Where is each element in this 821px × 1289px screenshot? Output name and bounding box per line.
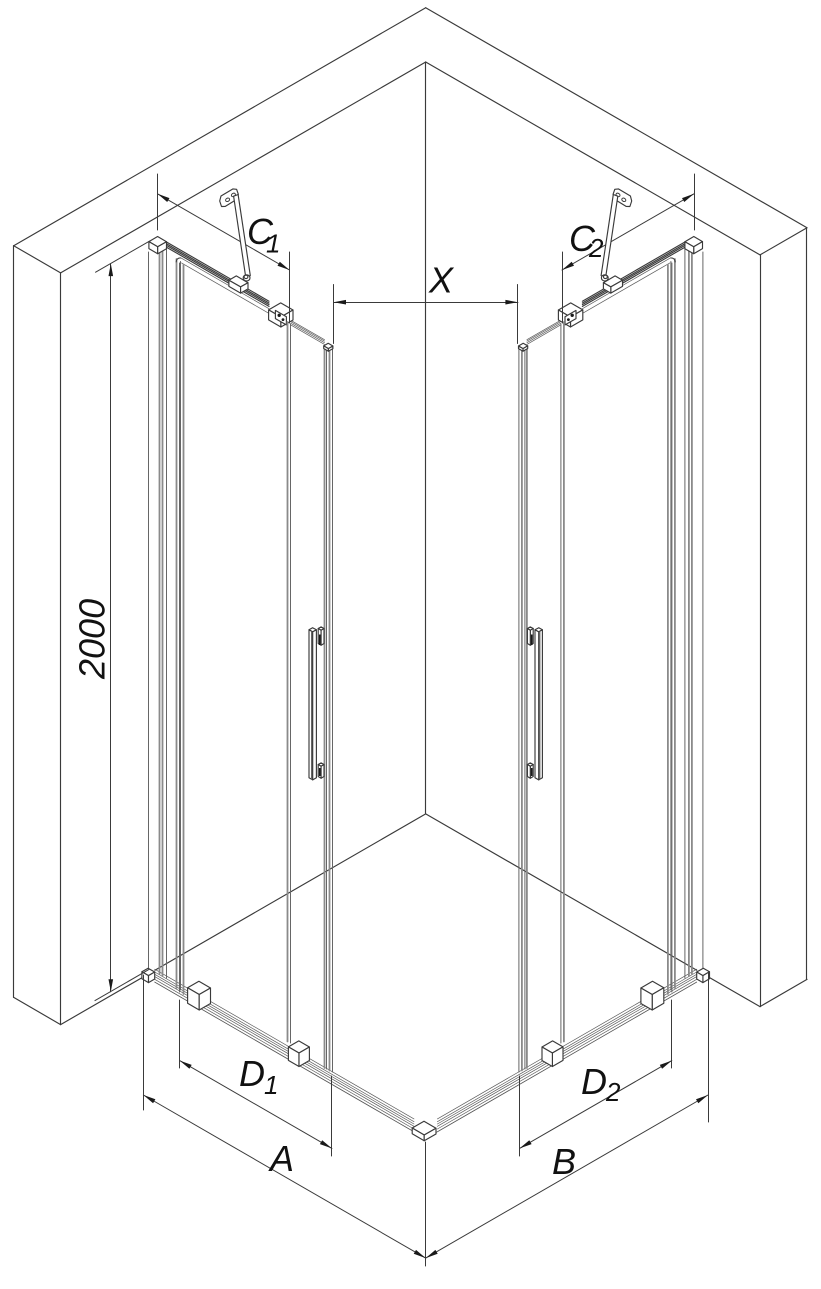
svg-text:D: D: [581, 1061, 607, 1102]
svg-text:2000: 2000: [72, 599, 113, 680]
svg-text:1: 1: [264, 1070, 278, 1100]
svg-text:1: 1: [266, 229, 280, 259]
svg-text:A: A: [268, 1138, 294, 1179]
svg-text:B: B: [552, 1141, 576, 1182]
svg-text:D: D: [239, 1053, 265, 1094]
svg-text:X: X: [428, 260, 455, 301]
svg-text:2: 2: [588, 233, 604, 263]
svg-text:2: 2: [605, 1077, 621, 1107]
